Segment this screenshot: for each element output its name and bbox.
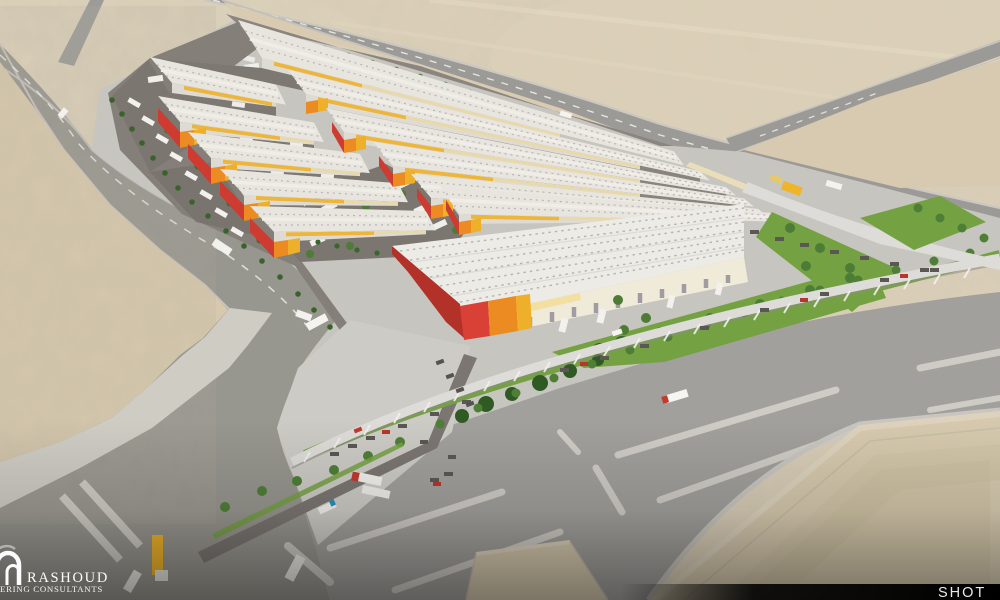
svg-text:EERING CONSULTANTS: EERING CONSULTANTS xyxy=(0,584,103,594)
svg-text:SHOT: SHOT xyxy=(938,585,986,600)
